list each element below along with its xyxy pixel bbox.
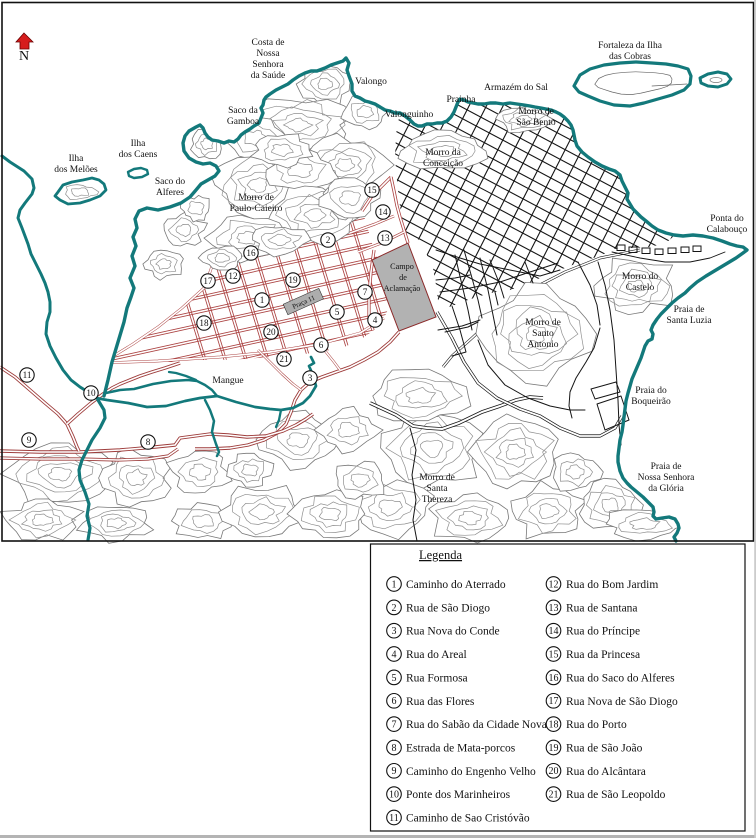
- svg-text:8: 8: [392, 743, 397, 754]
- svg-text:Caminho de Sao Cristóvão: Caminho de Sao Cristóvão: [406, 813, 530, 825]
- svg-text:12: 12: [228, 271, 238, 281]
- svg-text:Estrada de Mata-porcos: Estrada de Mata-porcos: [406, 743, 516, 755]
- svg-text:Rua do Saco do Alferes: Rua do Saco do Alferes: [566, 672, 675, 684]
- svg-text:9: 9: [392, 766, 397, 777]
- svg-text:13: 13: [380, 233, 390, 243]
- svg-text:Valonguinho: Valonguinho: [385, 110, 434, 120]
- svg-text:19: 19: [288, 275, 298, 285]
- svg-text:Santa: Santa: [426, 484, 448, 494]
- svg-text:16: 16: [549, 673, 559, 684]
- svg-text:3: 3: [392, 626, 397, 637]
- svg-text:Thereza: Thereza: [422, 495, 453, 505]
- svg-text:Legenda: Legenda: [419, 548, 462, 562]
- svg-text:Mangue: Mangue: [212, 376, 243, 386]
- svg-text:Rua do Alcântara: Rua do Alcântara: [566, 766, 646, 778]
- svg-text:16: 16: [246, 248, 256, 258]
- svg-text:6: 6: [392, 696, 397, 707]
- svg-text:Boqueirão: Boqueirão: [631, 397, 671, 407]
- svg-text:7: 7: [392, 720, 397, 731]
- svg-text:Ilha: Ilha: [69, 154, 85, 164]
- svg-text:8: 8: [146, 437, 151, 447]
- svg-text:de: de: [399, 273, 407, 282]
- svg-text:Nossa: Nossa: [256, 49, 280, 59]
- svg-text:Morro de: Morro de: [525, 318, 561, 328]
- svg-text:Rua Formosa: Rua Formosa: [406, 672, 468, 684]
- svg-text:Antonio: Antonio: [527, 340, 558, 350]
- svg-text:10: 10: [389, 790, 399, 801]
- svg-text:1: 1: [392, 579, 397, 590]
- svg-text:18: 18: [199, 318, 209, 328]
- svg-text:21: 21: [279, 354, 289, 364]
- svg-text:14: 14: [549, 626, 559, 637]
- svg-text:2: 2: [326, 235, 331, 245]
- svg-text:Praia do: Praia do: [635, 386, 667, 396]
- svg-text:Caminho do Aterrado: Caminho do Aterrado: [406, 579, 506, 591]
- svg-text:17: 17: [203, 276, 213, 286]
- svg-text:20: 20: [549, 766, 559, 777]
- svg-text:Praia de: Praia de: [674, 305, 705, 315]
- svg-text:1: 1: [260, 295, 265, 305]
- svg-text:da Saúde: da Saúde: [251, 71, 286, 81]
- svg-text:Castelo: Castelo: [626, 283, 655, 293]
- svg-text:Campo: Campo: [390, 262, 414, 271]
- svg-text:2: 2: [392, 603, 397, 614]
- svg-text:21: 21: [549, 790, 559, 801]
- svg-text:Rua de São Leopoldo: Rua de São Leopoldo: [566, 789, 666, 801]
- svg-text:12: 12: [549, 579, 559, 590]
- svg-text:Valongo: Valongo: [355, 77, 387, 87]
- svg-text:Rua do Príncipe: Rua do Príncipe: [566, 626, 640, 638]
- svg-text:13: 13: [549, 603, 559, 614]
- svg-text:18: 18: [549, 720, 559, 731]
- svg-text:Morro de: Morro de: [518, 107, 554, 117]
- svg-text:Calabouço: Calabouço: [707, 225, 748, 235]
- svg-text:Paulo-Caieiro: Paulo-Caieiro: [230, 204, 283, 214]
- svg-text:Saco do: Saco do: [155, 177, 186, 187]
- svg-text:Prainha: Prainha: [446, 95, 476, 105]
- svg-text:Morro do: Morro do: [622, 272, 658, 282]
- svg-text:11: 11: [23, 370, 32, 380]
- svg-text:Ponta do: Ponta do: [710, 214, 744, 224]
- svg-text:7: 7: [363, 287, 368, 297]
- svg-text:Rua do Areal: Rua do Areal: [406, 649, 467, 661]
- svg-text:Aclamação: Aclamação: [384, 284, 421, 293]
- svg-text:Rua da Princesa: Rua da Princesa: [566, 649, 640, 661]
- svg-text:Conceição: Conceição: [423, 159, 463, 169]
- svg-text:Rua Nova de São Diogo: Rua Nova de São Diogo: [566, 696, 678, 708]
- svg-text:5: 5: [335, 307, 340, 317]
- svg-text:11: 11: [389, 813, 399, 824]
- svg-text:Senhora: Senhora: [252, 60, 284, 70]
- svg-text:Rua do Porto: Rua do Porto: [566, 719, 627, 731]
- svg-text:Nossa Senhora: Nossa Senhora: [638, 473, 696, 483]
- svg-text:Praia de: Praia de: [651, 462, 682, 472]
- svg-text:da Glória: da Glória: [648, 484, 684, 494]
- svg-text:dos Melões: dos Melões: [54, 165, 98, 175]
- svg-text:3: 3: [308, 373, 313, 383]
- svg-text:15: 15: [549, 649, 559, 660]
- svg-text:19: 19: [549, 743, 559, 754]
- svg-text:9: 9: [27, 435, 32, 445]
- svg-text:14: 14: [378, 207, 388, 217]
- svg-text:Rua de São Diogo: Rua de São Diogo: [406, 602, 490, 614]
- svg-text:Rua de São João: Rua de São João: [566, 743, 643, 755]
- svg-text:Costa de: Costa de: [252, 38, 285, 48]
- svg-text:São Bento: São Bento: [516, 118, 556, 128]
- svg-text:15: 15: [367, 185, 377, 195]
- svg-text:Gamboa: Gamboa: [227, 117, 260, 127]
- svg-text:Morro de: Morro de: [238, 193, 274, 203]
- svg-text:Rua das Flores: Rua das Flores: [406, 696, 475, 708]
- svg-text:10: 10: [86, 388, 96, 398]
- svg-text:6: 6: [319, 340, 324, 350]
- svg-text:17: 17: [549, 696, 559, 707]
- svg-text:N: N: [19, 49, 29, 64]
- svg-text:Morro da: Morro da: [425, 148, 461, 158]
- svg-text:4: 4: [373, 315, 378, 325]
- svg-text:Fortaleza da Ilha: Fortaleza da Ilha: [598, 41, 663, 51]
- svg-text:Morro de: Morro de: [419, 473, 455, 483]
- svg-text:dos Caens: dos Caens: [119, 150, 158, 160]
- svg-text:Armazém do Sal: Armazém do Sal: [484, 83, 548, 93]
- svg-text:Santa Luzia: Santa Luzia: [666, 316, 712, 326]
- svg-text:4: 4: [392, 649, 397, 660]
- svg-text:Santo: Santo: [532, 329, 554, 339]
- svg-text:Rua do Sabão da Cidade Nova: Rua do Sabão da Cidade Nova: [406, 719, 547, 731]
- svg-text:Rua do Bom Jardim: Rua do Bom Jardim: [566, 579, 658, 591]
- svg-text:5: 5: [392, 673, 397, 684]
- svg-text:Rua Nova do Conde: Rua Nova do Conde: [406, 626, 500, 638]
- svg-text:Rua de Santana: Rua de Santana: [566, 602, 638, 614]
- svg-text:Ilha: Ilha: [131, 139, 147, 149]
- svg-text:Alferes: Alferes: [156, 187, 184, 198]
- svg-text:Ponte dos Marinheiros: Ponte dos Marinheiros: [406, 789, 511, 801]
- svg-text:20: 20: [266, 327, 276, 337]
- svg-text:das Cobras: das Cobras: [609, 52, 651, 62]
- svg-text:Caminho do Engenho Velho: Caminho do Engenho Velho: [406, 766, 536, 778]
- svg-text:Saco da: Saco da: [228, 106, 259, 116]
